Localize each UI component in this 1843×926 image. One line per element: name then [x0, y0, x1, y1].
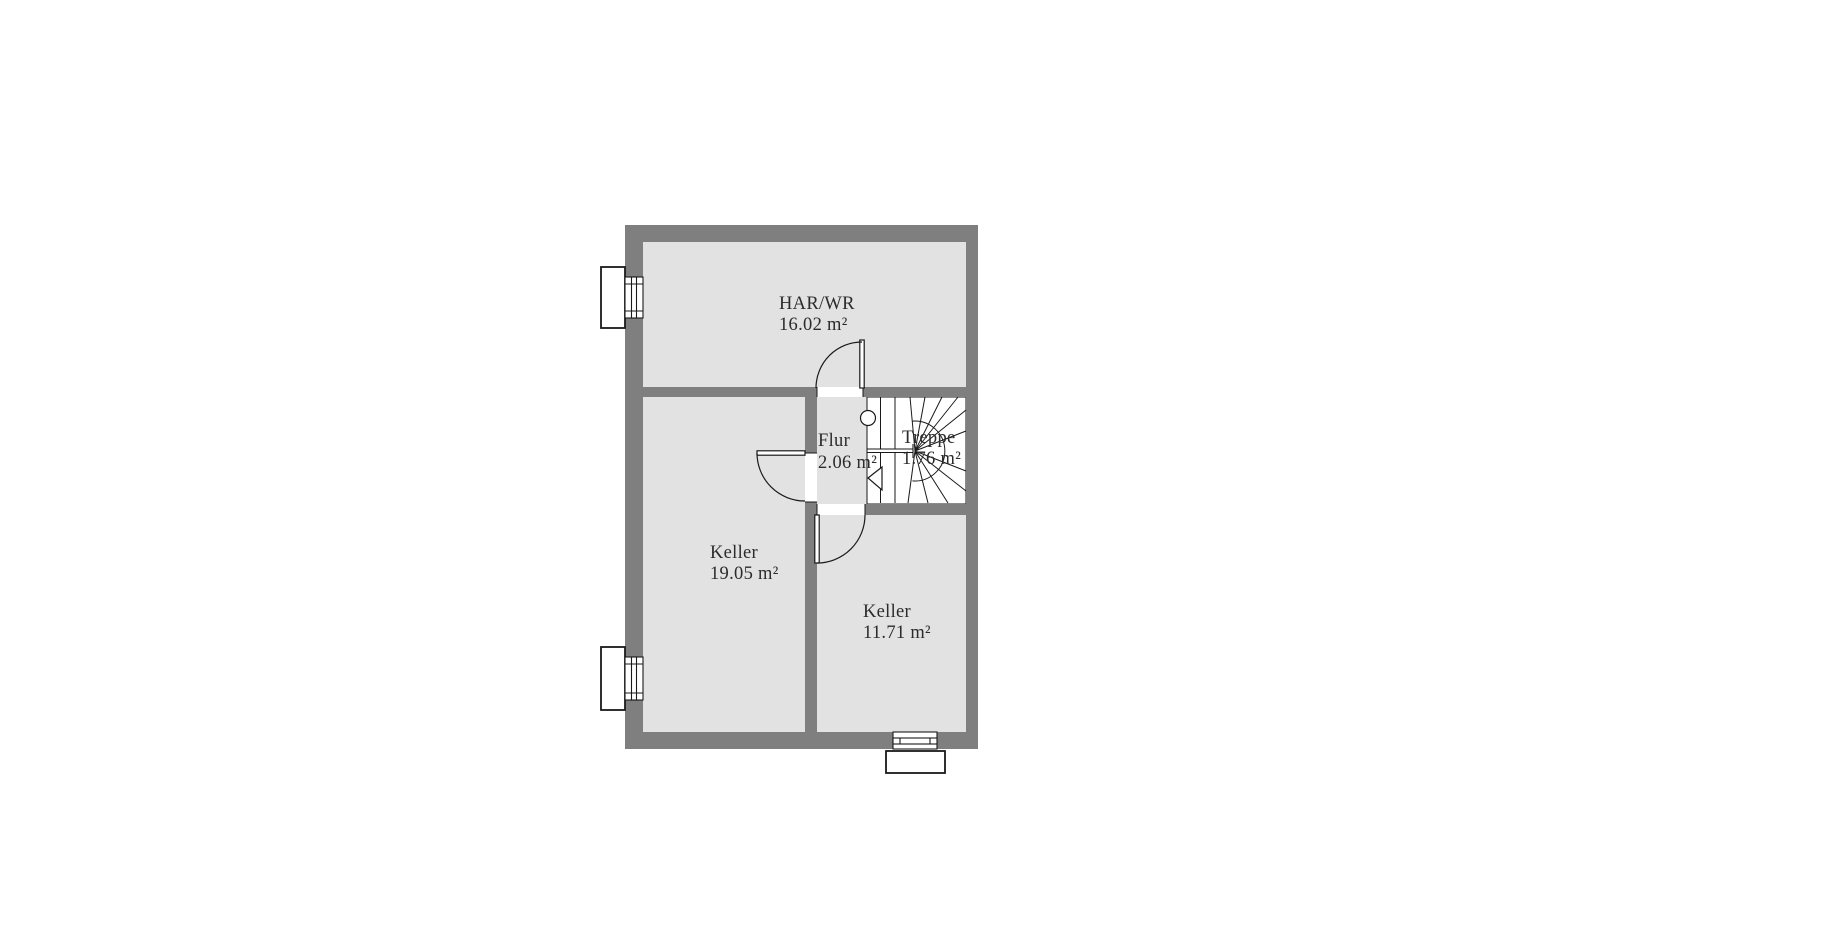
wall-interior-vertical — [805, 397, 817, 453]
room-area: 1.76 m² — [902, 449, 961, 469]
wall-interior-horizontal — [805, 504, 817, 515]
room-area: 19.05 m² — [710, 564, 779, 584]
window-glass-icon — [632, 277, 637, 318]
room-area: 16.02 m² — [779, 315, 848, 335]
window-light-shaft — [886, 751, 945, 773]
door-opening — [817, 504, 865, 515]
window-light-shaft — [601, 647, 625, 710]
room-area: 11.71 m² — [863, 623, 931, 643]
door-opening — [817, 387, 863, 397]
wall-interior-horizontal — [863, 387, 966, 397]
floor-plan: HAR/WR 16.02 m² Keller 19.05 m² Flur 2.0… — [0, 0, 1843, 926]
room-area: 2.06 m² — [818, 453, 877, 473]
door-opening — [805, 453, 817, 502]
room-label: HAR/WR — [779, 294, 855, 314]
window-bottom-left — [601, 647, 643, 710]
door-leaf — [757, 451, 805, 455]
room-label: Keller — [863, 602, 911, 622]
wall-outer-top — [625, 225, 978, 242]
window-bottom — [886, 732, 945, 773]
wall-outer-right — [966, 242, 978, 732]
wall-interior-horizontal — [865, 504, 966, 515]
door-leaf — [815, 515, 819, 563]
window-light-shaft — [601, 267, 625, 328]
stair-entry-circle-icon — [861, 411, 876, 426]
room-label: Keller — [710, 543, 758, 563]
room-label: Flur — [818, 431, 850, 451]
door-leaf — [860, 340, 864, 388]
wall-interior-horizontal — [643, 387, 817, 397]
room-label: Treppe — [902, 428, 956, 448]
